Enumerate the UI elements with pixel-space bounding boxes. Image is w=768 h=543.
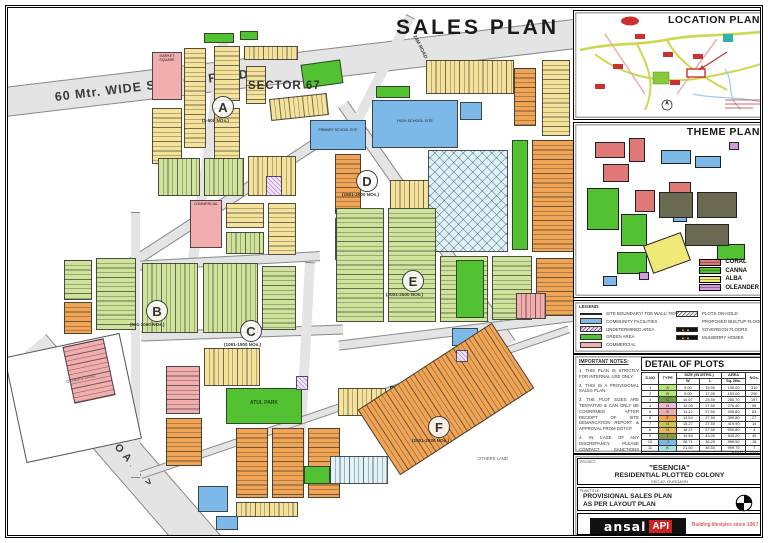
plan-title-row: PLAN TITLE: PROVISIONAL SALES PLAN AS PE… bbox=[577, 487, 761, 511]
col-sno: S.NO bbox=[642, 373, 659, 385]
plot-strip bbox=[236, 428, 268, 498]
col-type: TYPE bbox=[659, 373, 677, 385]
plot-strip bbox=[214, 46, 240, 101]
block-marker-F: F bbox=[428, 416, 450, 438]
legend-item: GREEN AREA bbox=[580, 334, 688, 340]
plot-strip bbox=[272, 428, 304, 498]
legend-swatch bbox=[676, 319, 698, 325]
theme-plan-panel: THEME PLAN bbox=[573, 122, 761, 298]
legend-left-column: SITE BOUNDARY/ TOE WALL/ FENCING COMMUNI… bbox=[580, 311, 688, 350]
plot-strip bbox=[96, 258, 136, 330]
primary-school-label: PRIMARY SCHOOL SITE bbox=[311, 121, 365, 133]
plot-strip bbox=[532, 140, 574, 252]
location-plan-panel: LOCATION PLAN bbox=[573, 10, 761, 120]
location-plan-drawing bbox=[575, 12, 761, 116]
sheet-frame: 60 Mtr. WIDE SECTOR ROAD <<SOHNA ROAD>> … bbox=[5, 5, 763, 538]
high-school-label: HIGH SCHOOL SITE bbox=[373, 101, 457, 123]
note-item: 2. THIS IS A PROVISIONAL SALES PLAN. bbox=[579, 383, 639, 395]
plot-strip bbox=[244, 46, 298, 60]
logo-tagline: Building lifestyles since 1967 bbox=[692, 522, 761, 528]
important-notes: IMPORTANT NOTES: 1. THIS PLAN IS STRICTL… bbox=[579, 359, 639, 461]
legend-item: PLOTS ON HOLD bbox=[676, 311, 761, 317]
notes-table-panel: IMPORTANT NOTES: 1. THIS PLAN IS STRICTL… bbox=[573, 354, 761, 454]
legend-right-column: PLOTS ON HOLD PROPOSED BUILTUP FLOORS: S… bbox=[676, 311, 761, 343]
plot-strip bbox=[64, 302, 92, 334]
theme-legend-label: ALBA bbox=[725, 276, 742, 282]
legend-label: SOVEREIGN FLOORS bbox=[702, 327, 747, 332]
plot-strip bbox=[166, 366, 200, 414]
logo-row: ansal API Building lifestyles since 1967 bbox=[577, 513, 761, 535]
legend-label: PROPOSED BUILTUP FLOORS: bbox=[702, 319, 761, 324]
ansal-logo-text: ansal bbox=[604, 519, 647, 534]
block-range-A: (1-500 NOs.) bbox=[202, 118, 229, 123]
plot-strip bbox=[269, 93, 329, 121]
project-name: "ESENCIA" bbox=[578, 463, 761, 472]
note-item: 1. THIS PLAN IS STRICTLY FOR INTERNAL US… bbox=[579, 368, 639, 380]
detail-of-plots: DETAIL OF PLOTS S.NO TYPE SIZE (IN MTRS.… bbox=[641, 357, 761, 458]
legend-label: COMMERCIAL bbox=[606, 342, 636, 347]
legend-swatch bbox=[580, 326, 602, 332]
col-nos: NOs. bbox=[746, 373, 761, 385]
plot-strip bbox=[262, 266, 296, 330]
legend-item: SITE BOUNDARY/ TOE WALL/ FENCING bbox=[580, 311, 688, 316]
green-patch bbox=[204, 33, 234, 43]
community-patch bbox=[216, 516, 238, 530]
plot-strip bbox=[226, 203, 264, 228]
legend-label: PLOTS ON HOLD bbox=[702, 311, 738, 316]
plot-strip bbox=[166, 418, 202, 466]
legend-swatch bbox=[580, 318, 602, 324]
others-land-label-2: OTHERS LAND bbox=[478, 456, 508, 461]
green-strip bbox=[512, 140, 528, 250]
plot-strip bbox=[184, 48, 206, 148]
block-range-F: (2501-2930 NOs.) bbox=[412, 438, 449, 443]
community-patch bbox=[198, 486, 228, 512]
theme-legend-label: CANNA bbox=[725, 268, 747, 274]
community-patch bbox=[460, 102, 482, 120]
plot-strip bbox=[336, 208, 384, 322]
theme-legend-row: ALBA bbox=[699, 276, 759, 283]
block-range-E: (2001-2500 NOs.) bbox=[386, 292, 423, 297]
north-arrow-icon bbox=[735, 494, 753, 512]
plot-strip bbox=[268, 203, 296, 255]
plot-strip bbox=[204, 158, 244, 196]
theme-legend-swatch bbox=[699, 284, 721, 291]
notes-title: IMPORTANT NOTES: bbox=[579, 359, 639, 365]
market-square-label: MARKET SQUARE bbox=[153, 53, 181, 62]
market-square-block: MARKET SQUARE bbox=[152, 52, 182, 100]
legend-label: COMMUNITY FACILITIES bbox=[606, 319, 657, 324]
theme-legend-row: CORAL bbox=[699, 259, 759, 266]
theme-legend-row: CANNA bbox=[699, 267, 759, 274]
plot-strip bbox=[64, 260, 92, 300]
block-marker-E: E bbox=[402, 270, 424, 292]
ansal-logo: ansal API bbox=[590, 518, 686, 534]
green-patch bbox=[304, 466, 330, 484]
theme-legend-label: CORAL bbox=[725, 259, 746, 265]
project-type: RESIDENTIAL PLOTTED COLONY bbox=[578, 472, 761, 479]
plot-strip bbox=[542, 60, 570, 136]
theme-legend-row: OLEANDER bbox=[699, 284, 759, 291]
note-item: 3. THE PLOT SIZES ARE TENTATIVE & CAN ON… bbox=[579, 397, 639, 432]
plot-strip bbox=[226, 232, 264, 254]
plot-strip bbox=[514, 68, 536, 126]
block-range-D: (1501-2000 NOs.) bbox=[342, 192, 379, 197]
plot-strip bbox=[426, 60, 514, 94]
detail-of-plots-title: DETAIL OF PLOTS bbox=[641, 357, 761, 371]
plot-strip bbox=[204, 348, 260, 386]
commercial-block: COMMERCIAL bbox=[190, 200, 222, 248]
plot-strip bbox=[158, 158, 200, 196]
legend-item: UNDETERMINED AREA bbox=[580, 326, 688, 332]
plot-strip bbox=[516, 293, 546, 319]
legend-swatch bbox=[580, 313, 602, 315]
sheet-frame-inner: 60 Mtr. WIDE SECTOR ROAD <<SOHNA ROAD>> … bbox=[7, 7, 761, 536]
legend-label: UNDETERMINED AREA bbox=[606, 327, 654, 332]
title-block-panel: PROJECT: "ESENCIA" RESIDENTIAL PLOTTED C… bbox=[573, 454, 761, 536]
theme-legend: CORAL CANNA ALBA OLEANDER bbox=[699, 257, 759, 291]
undetermined-patch bbox=[266, 176, 282, 196]
block-range-C: (1061-1500 NOs.) bbox=[224, 342, 261, 347]
atul-park: ATUL PARK bbox=[226, 388, 302, 424]
high-school-block: HIGH SCHOOL SITE bbox=[372, 100, 458, 148]
undetermined-lattice bbox=[428, 150, 508, 252]
legend-title: LEGEND: bbox=[579, 304, 761, 309]
green-patch bbox=[376, 86, 410, 98]
plot-strip bbox=[330, 456, 388, 484]
legend-item: COMMUNITY FACILITIES bbox=[580, 318, 688, 324]
block-marker-C: C bbox=[240, 320, 262, 342]
green-patch bbox=[240, 31, 258, 40]
legend-swatch bbox=[676, 335, 698, 341]
theme-legend-label: OLEANDER bbox=[725, 285, 759, 291]
block-range-B: (501-1060 NOs.) bbox=[130, 322, 164, 327]
primary-school-block: PRIMARY SCHOOL SITE bbox=[310, 120, 366, 150]
legend-item: MULBERRY HOMES bbox=[676, 335, 761, 341]
plot-strip bbox=[236, 502, 298, 517]
project-label: PROJECT: bbox=[580, 460, 596, 464]
block-marker-B: B bbox=[146, 300, 168, 322]
legend-item: PROPOSED BUILTUP FLOORS: bbox=[676, 319, 761, 325]
legend-swatch bbox=[580, 334, 602, 340]
theme-legend-swatch bbox=[699, 276, 721, 283]
sector-label: SECTOR 67 bbox=[248, 80, 321, 92]
project-row: PROJECT: "ESENCIA" RESIDENTIAL PLOTTED C… bbox=[577, 458, 761, 485]
legend-swatch bbox=[676, 311, 698, 317]
plots-table: S.NO TYPE SIZE (IN MTRS.) AREA NOs. W L … bbox=[641, 372, 761, 458]
legend-item: COMMERCIAL bbox=[580, 342, 688, 348]
legend-swatch bbox=[676, 327, 698, 333]
commercial-label: COMMERCIAL bbox=[191, 201, 221, 206]
block-marker-D: D bbox=[356, 170, 378, 192]
theme-legend-swatch bbox=[699, 267, 721, 274]
plot-strip bbox=[152, 108, 182, 164]
notes-list: 1. THIS PLAN IS STRICTLY FOR INTERNAL US… bbox=[579, 368, 639, 458]
legend-swatch bbox=[580, 342, 602, 348]
theme-legend-swatch bbox=[699, 259, 721, 266]
undetermined-patch bbox=[456, 350, 468, 362]
legend-label: MULBERRY HOMES bbox=[702, 335, 744, 340]
green-patch bbox=[456, 260, 484, 318]
block-marker-A: A bbox=[212, 96, 234, 118]
api-logo-text: API bbox=[649, 520, 672, 533]
project-location: SEC-67, GURGAON bbox=[578, 479, 761, 484]
plan-title-label: PLAN TITLE: bbox=[580, 489, 600, 493]
plot-strip bbox=[388, 208, 436, 322]
legend-label: GREEN AREA bbox=[606, 334, 635, 339]
undetermined-patch bbox=[296, 376, 308, 390]
legend-panel: LEGEND: SITE BOUNDARY/ TOE WALL/ FENCING… bbox=[573, 300, 761, 354]
atul-park-label: ATUL PARK bbox=[227, 389, 301, 407]
legend-item: SOVEREIGN FLOORS bbox=[676, 327, 761, 333]
sheet-title: SALES PLAN bbox=[396, 16, 559, 40]
